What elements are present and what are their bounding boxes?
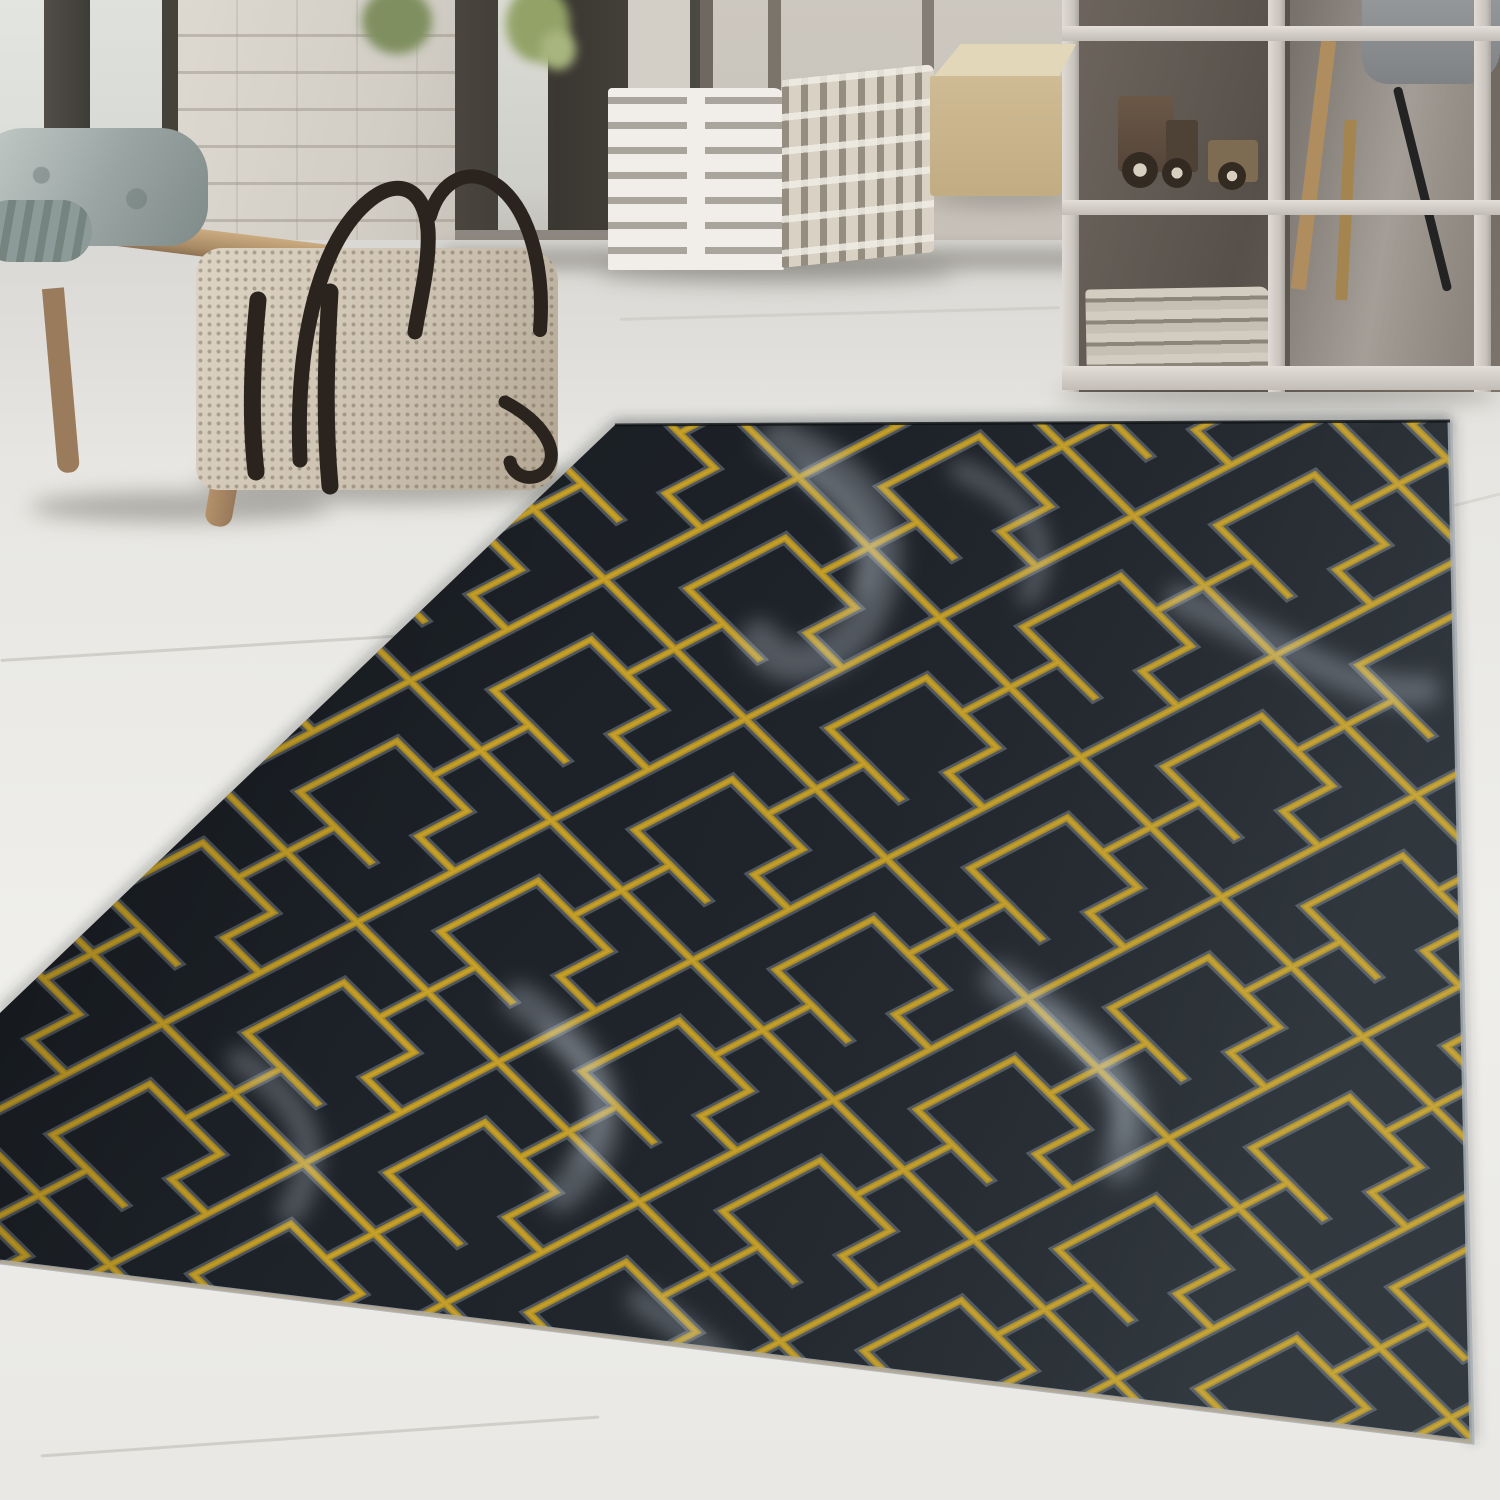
- rolled-blanket: [0, 200, 92, 262]
- rug-lighting: [0, 0, 1500, 1500]
- knitted-bag: [196, 248, 558, 490]
- room-scene: [0, 0, 1500, 1500]
- rug: [0, 0, 1500, 1500]
